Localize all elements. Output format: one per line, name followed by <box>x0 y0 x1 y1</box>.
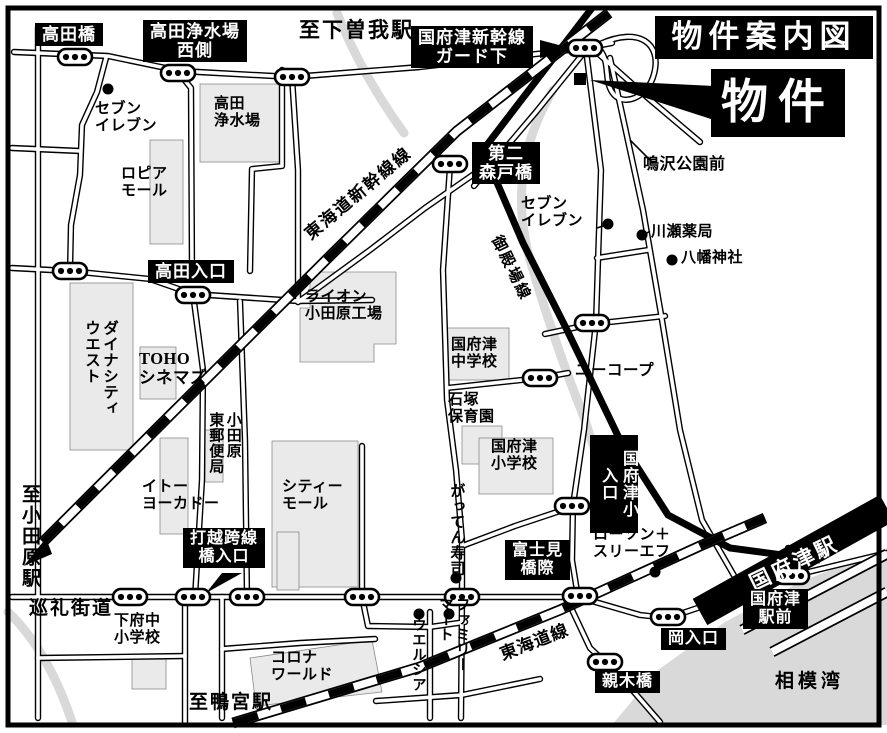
label-ito-yokado: イトー ヨーカドー <box>142 479 220 514</box>
label-kawase-yakkyoku: 川瀬薬局 <box>651 224 713 241</box>
traffic-light <box>53 263 87 279</box>
lawson-dot <box>650 567 661 578</box>
label-ucoop: ユーコープ <box>575 362 654 380</box>
label-oyagibashi: 親木橋 <box>595 671 660 693</box>
label-ishizuka-hoikuen: 石塚 保育園 <box>448 392 495 427</box>
label-family-mart: ファミリー マート <box>436 597 470 702</box>
traffic-light <box>555 498 589 514</box>
label-uchikoshi-kosenkyo-iriguchi: 打越跨線 橋入口 <box>183 528 265 568</box>
traffic-light <box>568 40 602 56</box>
label-junrei-kaido: 巡礼街道 <box>29 598 113 620</box>
traffic-light <box>575 315 609 331</box>
traffic-light <box>161 65 195 81</box>
traffic-light <box>588 654 622 670</box>
label-dynacity-west: ダイナシティ ウエスト <box>82 320 118 428</box>
kawase-dot <box>637 230 648 241</box>
traffic-light <box>176 287 210 303</box>
label-shimofuchu-shogakko: 下府中 小学校 <box>114 613 161 648</box>
label-corona-world: コロナ ワールド <box>271 650 333 685</box>
label-to-shimosoga-station: 至下曽我駅 <box>299 18 414 42</box>
traffic-light <box>58 49 92 65</box>
label-takadabashi: 高田橋 <box>35 23 103 46</box>
traffic-light <box>433 156 467 172</box>
property-marker <box>574 73 586 85</box>
label-lion-odawara-kojo: ライオン 小田原工場 <box>305 289 383 324</box>
traffic-light <box>230 589 264 605</box>
label-takada-iriguchi: 高田入口 <box>148 260 234 283</box>
seven-eleven-2-dot <box>603 219 614 230</box>
building-uchikoshi <box>277 532 299 590</box>
label-to-odawara-station: 至小田原駅 <box>18 484 40 599</box>
traffic-light <box>113 589 147 605</box>
property-guide-map: 物件案内図 物件 高田橋 高田浄水場 西側 至下曽我駅 国府津新幹線 ガード下 … <box>0 0 887 733</box>
label-kozu-ekimae: 国府津 駅前 <box>743 589 808 629</box>
building-shimofuchu <box>132 659 166 689</box>
label-to-kamonomiya-station: 至鴨宮駅 <box>189 692 273 714</box>
label-city-mall: シティー モール <box>282 479 343 514</box>
label-lawson-three-f: ローソン＋ スリーエフ <box>593 527 671 562</box>
traffic-light <box>523 370 557 386</box>
label-toho-cinemas: TOHO シネマズ <box>139 349 207 387</box>
traffic-light <box>651 609 685 625</box>
hachiman-dot <box>667 255 678 266</box>
label-seven-eleven-2: セブン イレブン <box>521 196 583 231</box>
label-fujimibashi-giwa: 富士見 橋際 <box>505 540 570 580</box>
label-takada-josuijo: 高田 浄水場 <box>214 96 261 131</box>
label-takada-josuijo-nishigawa: 高田浄水場 西側 <box>143 20 247 62</box>
traffic-light <box>275 69 309 85</box>
label-narusawa-koen-mae: 鳴沢公園前 <box>643 156 726 175</box>
label-kozusho-iriguchi: 国府津小 入口 <box>590 435 638 533</box>
label-seven-eleven-1: セブン イレブン <box>95 101 157 136</box>
label-gatten-zushi: がってん寿司 <box>447 483 464 578</box>
seven-eleven-1-dot <box>103 84 114 95</box>
label-gado-shita: 国府津新幹線 ガード下 <box>411 26 533 68</box>
traffic-light <box>176 589 210 605</box>
label-daini-moritobashi: 第二 森戸橋 <box>472 142 540 184</box>
label-kozu-chugakko: 国府津 中学校 <box>451 337 498 372</box>
traffic-light <box>345 589 379 605</box>
label-sagami-bay: 相模湾 <box>775 671 844 693</box>
label-oka-iriguchi: 岡入口 <box>661 628 726 650</box>
label-lopia-mall: ロピア モール <box>121 166 168 201</box>
traffic-light <box>563 588 597 604</box>
label-hachiman-jinja: 八幡神社 <box>681 250 743 267</box>
property-label: 物件 <box>711 69 845 137</box>
map-title: 物件案内図 <box>655 16 873 59</box>
label-welcia: ウエルシア <box>409 617 426 707</box>
label-kozu-shogakko: 国府津 小学校 <box>491 439 538 474</box>
